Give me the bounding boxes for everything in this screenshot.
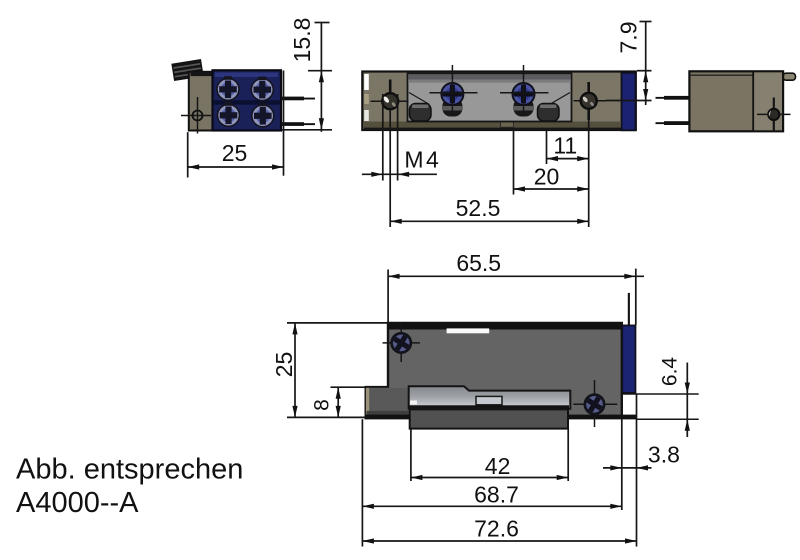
svg-text:72.6: 72.6 (474, 516, 519, 542)
svg-text:3.8: 3.8 (648, 442, 680, 468)
svg-text:6.4: 6.4 (659, 357, 682, 387)
svg-text:65.5: 65.5 (456, 250, 501, 276)
svg-text:15.8: 15.8 (289, 18, 315, 63)
svg-text:25: 25 (222, 140, 248, 166)
svg-text:11: 11 (553, 132, 577, 158)
svg-text:68.7: 68.7 (474, 482, 519, 508)
svg-text:Abb. entsprechen: Abb. entsprechen (16, 454, 243, 486)
svg-text:42: 42 (485, 453, 511, 479)
svg-text:M4: M4 (404, 146, 441, 172)
svg-text:52.5: 52.5 (456, 195, 501, 221)
svg-text:20: 20 (534, 163, 560, 189)
svg-text:7.9: 7.9 (616, 22, 642, 54)
svg-text:8: 8 (311, 399, 334, 411)
svg-text:25: 25 (271, 352, 297, 378)
svg-text:A4000--A: A4000--A (16, 487, 139, 519)
